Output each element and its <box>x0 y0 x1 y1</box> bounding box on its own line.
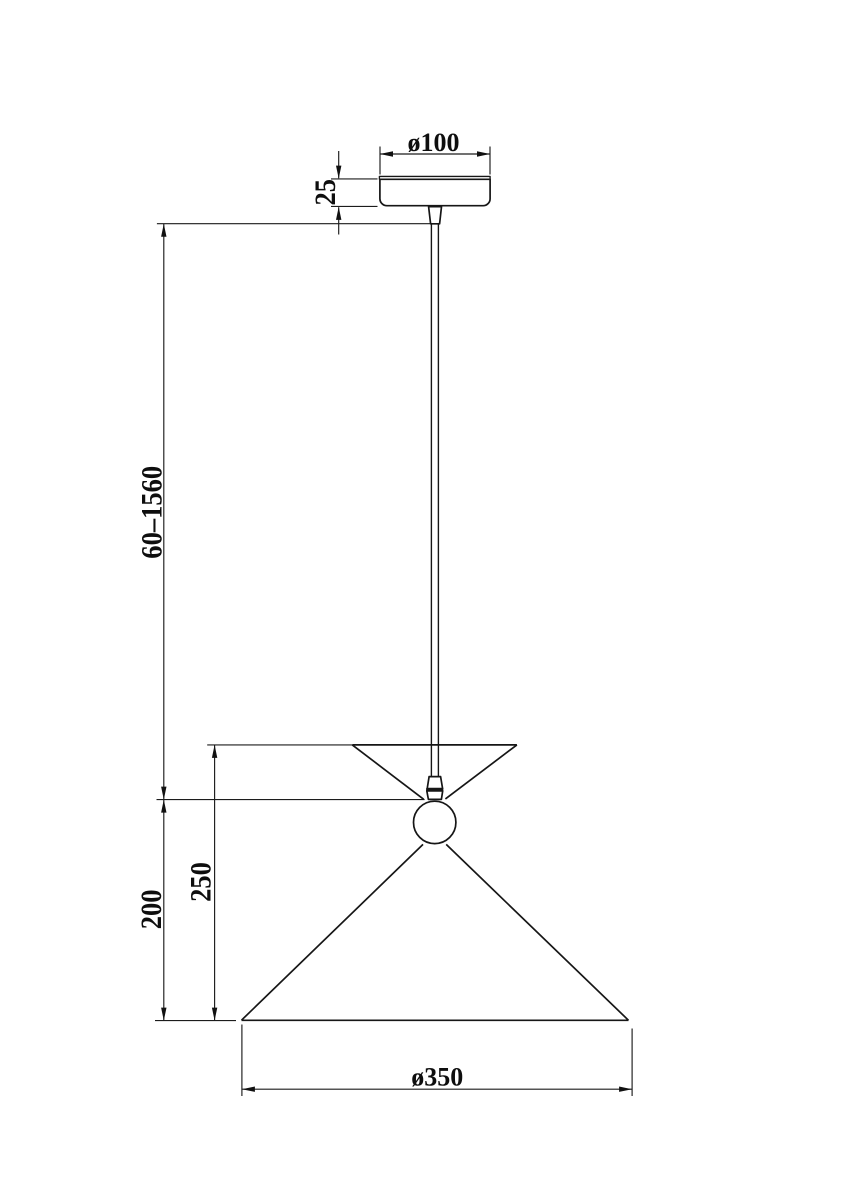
svg-text:ø350: ø350 <box>411 1062 463 1091</box>
svg-text:60–1560: 60–1560 <box>136 466 168 559</box>
svg-text:25: 25 <box>310 179 342 206</box>
svg-text:ø100: ø100 <box>408 128 460 157</box>
svg-text:200: 200 <box>136 890 168 930</box>
svg-text:250: 250 <box>185 862 217 902</box>
